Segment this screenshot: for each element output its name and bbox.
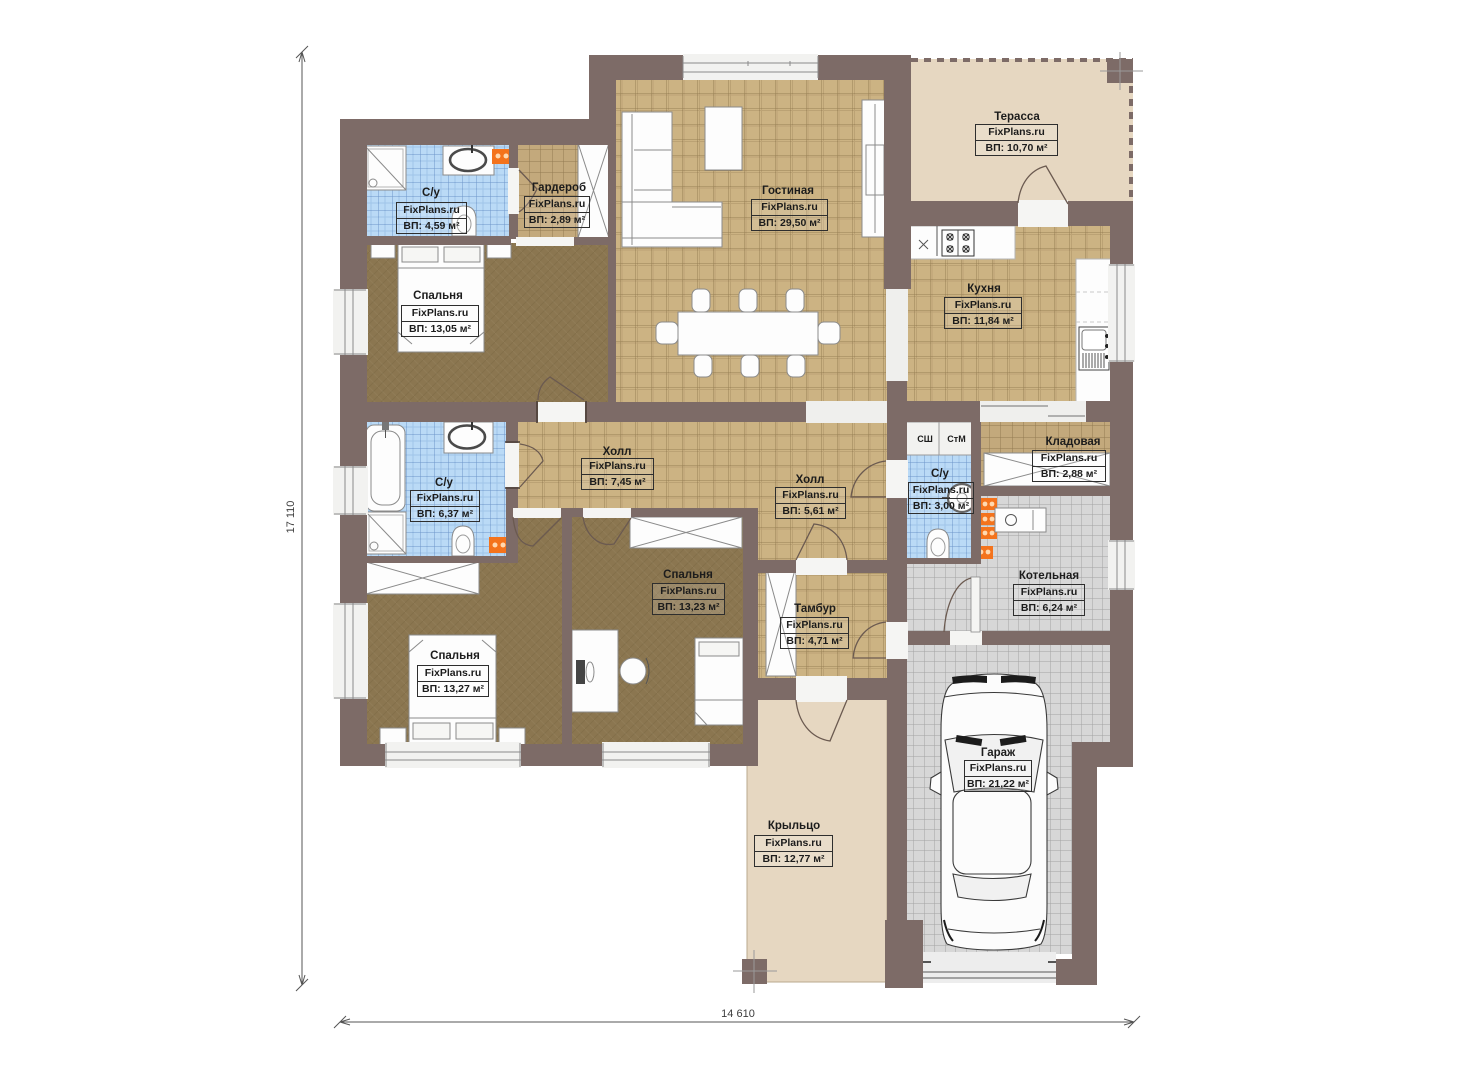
svg-text:17 110: 17 110 (285, 501, 297, 534)
svg-text:14 610: 14 610 (721, 1008, 755, 1020)
